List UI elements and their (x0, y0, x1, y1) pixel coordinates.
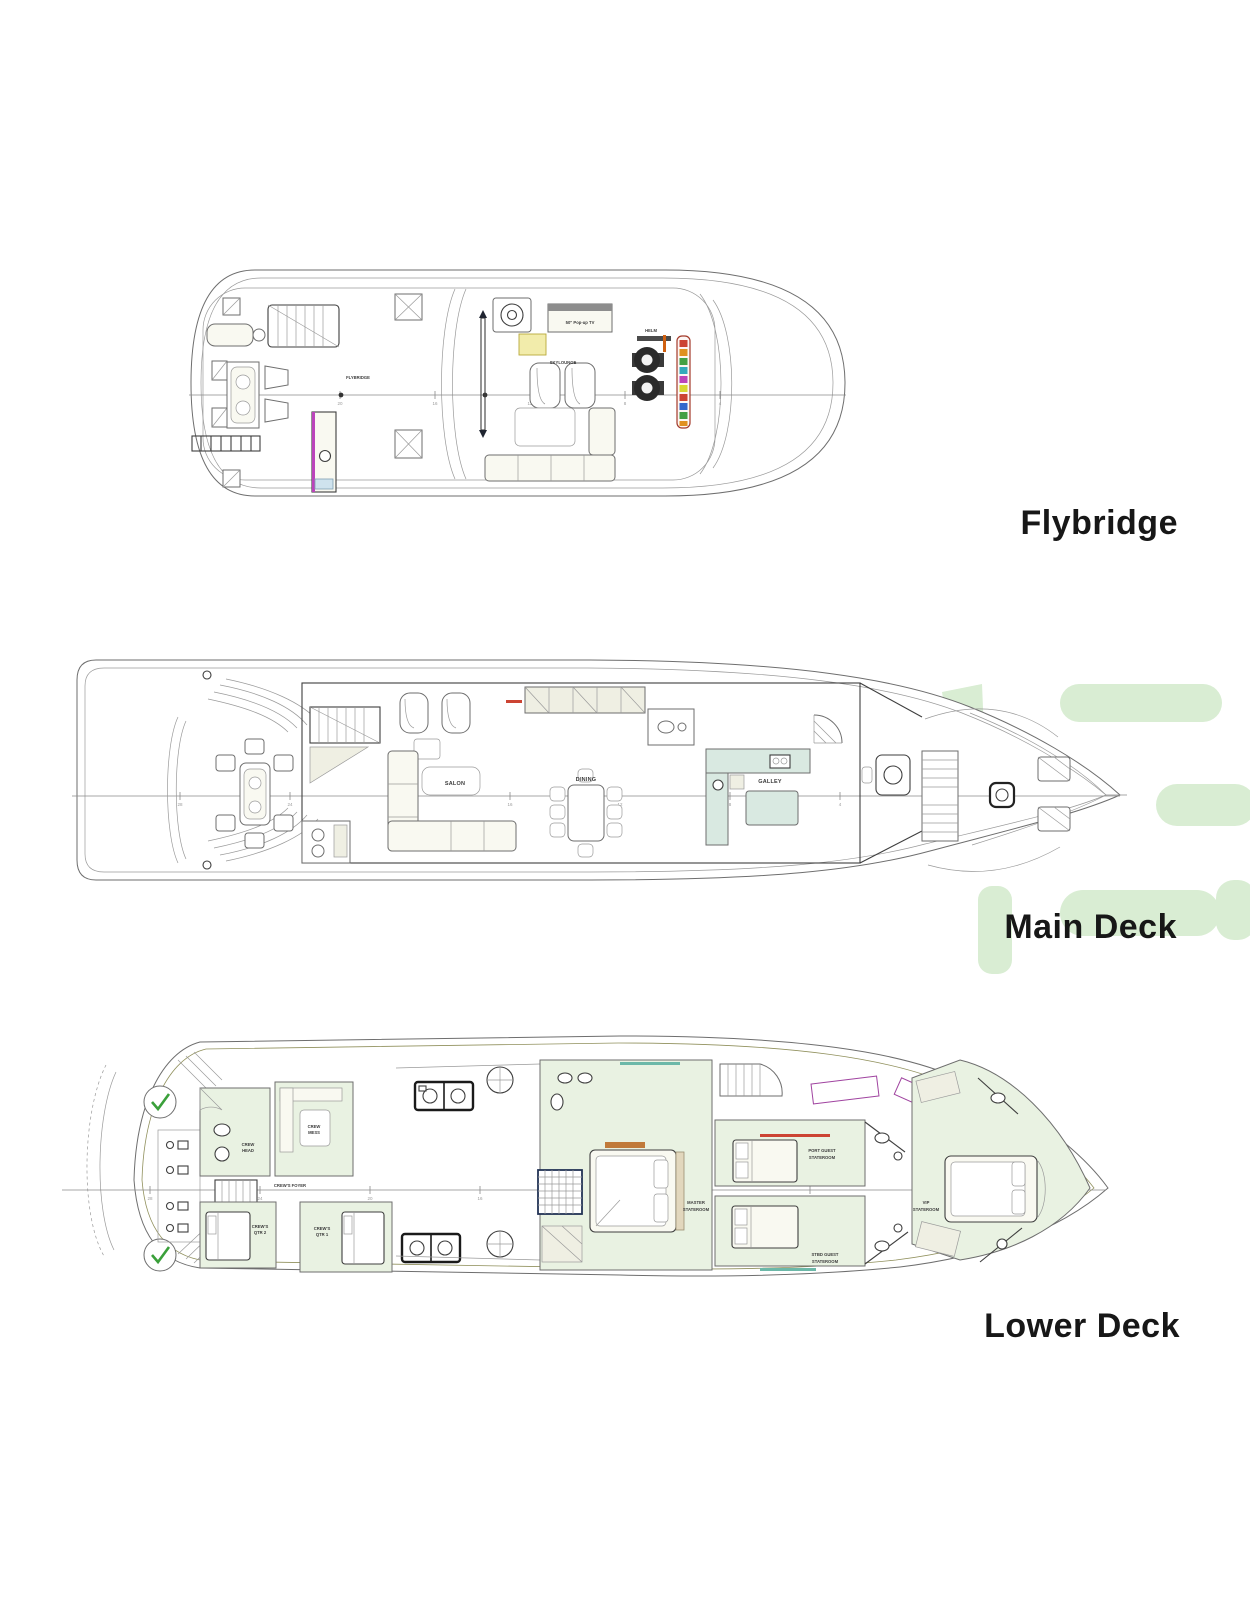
crew-qtr1-room (300, 1202, 392, 1272)
svg-text:20: 20 (337, 401, 343, 406)
svg-text:QTR 2: QTR 2 (254, 1230, 267, 1235)
popup-tv-label: 50" Pop-up TV (566, 320, 595, 325)
flybridge-plan: 24 20 16 12 8 4 (185, 258, 850, 508)
master-label: MASTER (687, 1200, 705, 1205)
master-bed-icon (590, 1142, 684, 1232)
crew-qtr2-room (200, 1202, 276, 1268)
flybridge-hatches (395, 294, 487, 458)
crew-qtr2-label: CREW'S (252, 1224, 269, 1229)
svg-text:28: 28 (147, 1196, 153, 1201)
washer-dryer-icon (415, 1082, 473, 1110)
port-guest-bed-icon (733, 1140, 797, 1182)
svg-text:STATEROOM: STATEROOM (809, 1155, 836, 1160)
svg-text:16: 16 (477, 1196, 483, 1201)
crew-head-room (200, 1088, 270, 1176)
crew-mess-room (275, 1082, 353, 1176)
svg-text:STATEROOM: STATEROOM (812, 1259, 839, 1264)
svg-text:8: 8 (624, 401, 627, 406)
svg-text:24: 24 (287, 802, 293, 807)
swim-gear-rack-icon (192, 436, 260, 451)
day-head-aft (302, 821, 350, 863)
day-head-fwd (648, 709, 694, 745)
sideboard (506, 687, 645, 713)
salon-label: SALON (445, 781, 465, 787)
stbd-guest-bed-icon (732, 1206, 798, 1248)
svg-text:16: 16 (507, 802, 513, 807)
windlass-icon (990, 783, 1014, 807)
skylounge-sofa-icon (485, 408, 615, 481)
port-guest-label: PORT GUEST (808, 1148, 836, 1153)
instrument-panel-icon (677, 336, 690, 428)
helm-room-label: HELM (645, 328, 657, 333)
svg-text:QTR 1: QTR 1 (316, 1232, 329, 1237)
lazarette-hatch-bottom (144, 1239, 176, 1271)
svg-text:16: 16 (432, 401, 438, 406)
aft-deck-table-icon (240, 763, 270, 825)
master-stateroom (538, 1060, 712, 1270)
stbd-guest-label: STBD GUEST (812, 1252, 839, 1257)
crew-stairs-icon (215, 1180, 257, 1204)
dining-label: DINING (576, 777, 596, 783)
flybridge-deck-label: Flybridge (1020, 504, 1178, 543)
lower-deck-label: Lower Deck (984, 1307, 1180, 1346)
svg-text:MESS: MESS (308, 1130, 320, 1135)
vip-label: VIP (923, 1200, 930, 1205)
crew-head-label: CREW (242, 1142, 255, 1147)
svg-text:20: 20 (367, 1196, 373, 1201)
main-deck-label: Main Deck (1004, 908, 1177, 947)
grill-icon (493, 298, 531, 332)
flybridge-stairs-icon (268, 305, 339, 347)
svg-text:STATEROOM: STATEROOM (913, 1207, 940, 1212)
master-shower-icon (538, 1170, 582, 1214)
flybridge-wetbar-icon (312, 412, 336, 492)
spa-table-icon (227, 362, 259, 428)
skylounge-room-label: SKYLOUNGE (550, 360, 577, 365)
flybridge-room-label: FLYBRIDGE (346, 375, 370, 380)
crew-qtr1-label: CREW'S (314, 1226, 331, 1231)
crew-foyer-label: CREW'S FOYER (274, 1183, 306, 1188)
skylounge-furniture: 50" Pop-up TV (485, 298, 690, 481)
crew-mess-label: CREW (308, 1124, 321, 1129)
svg-text:28: 28 (177, 802, 183, 807)
yacht-deck-plans-page: 24 20 16 12 8 4 (0, 0, 1250, 1619)
svg-text:HEAD: HEAD (242, 1148, 254, 1153)
galley-label: GALLEY (758, 779, 782, 785)
popup-tv-cabinet: 50" Pop-up TV (548, 304, 612, 332)
lower-deck-plan: 28 24 20 16 12 8 4 (60, 1030, 1140, 1285)
vip-bed-icon (945, 1156, 1045, 1222)
helm-seats-icon (632, 347, 664, 401)
bow-seating-icon (922, 751, 958, 841)
svg-text:4: 4 (719, 401, 722, 406)
sun-lounger-icon (207, 324, 265, 346)
svg-text:24: 24 (257, 1196, 263, 1201)
svg-text:STATEROOM: STATEROOM (683, 1207, 710, 1212)
lazarette-hatch-top (144, 1086, 176, 1118)
main-deck-plan: 28 24 20 16 12 8 4 (70, 655, 1130, 890)
